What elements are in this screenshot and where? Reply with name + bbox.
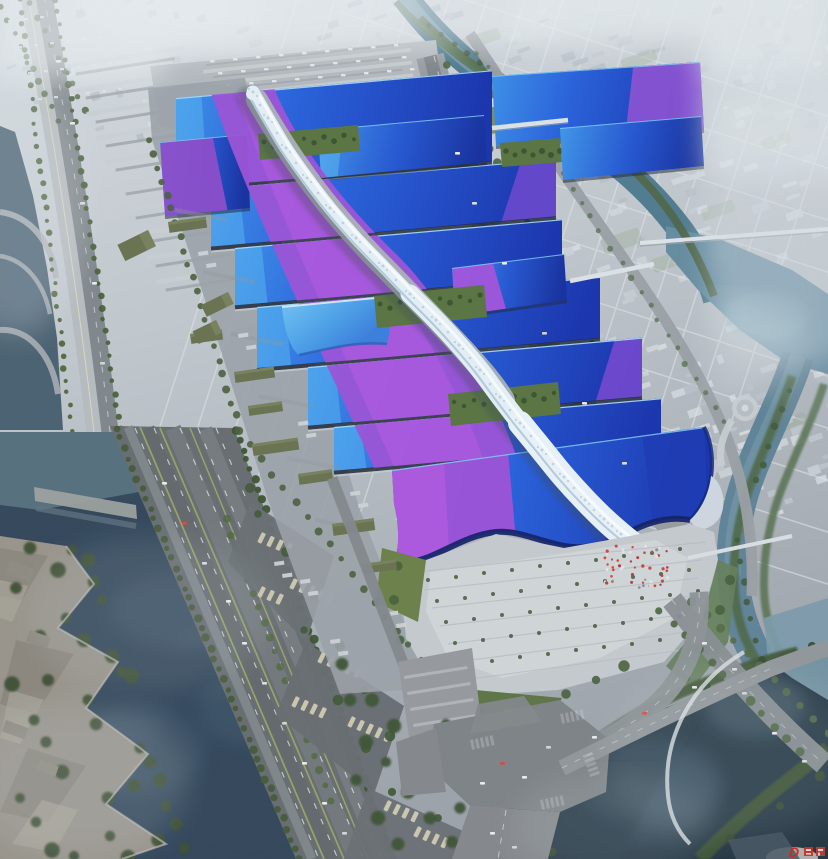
- svg-text:D: D: [789, 844, 799, 859]
